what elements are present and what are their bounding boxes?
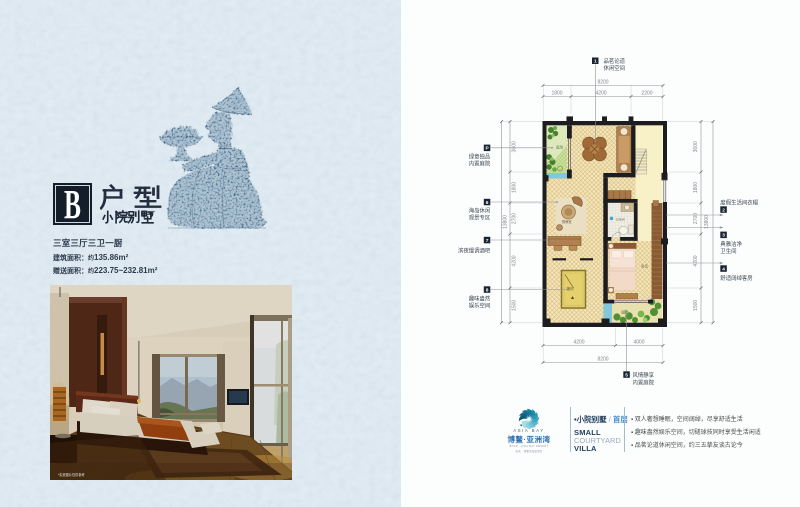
svg-text:绿意独品: 绿意独品 bbox=[469, 153, 491, 161]
svg-text:4200: 4200 bbox=[693, 255, 699, 266]
svg-text:13800: 13800 bbox=[704, 215, 710, 229]
svg-text:度假生活间衣帽: 度假生活间衣帽 bbox=[720, 198, 758, 206]
svg-text:3600: 3600 bbox=[693, 141, 699, 152]
svg-text:客房: 客房 bbox=[641, 264, 649, 269]
svg-text:1800: 1800 bbox=[693, 182, 699, 193]
svg-text:4000: 4000 bbox=[633, 340, 644, 346]
svg-text:风情静享: 风情静享 bbox=[633, 371, 655, 379]
svg-text:海岛休闲: 海岛休闲 bbox=[469, 207, 491, 215]
svg-text:2: 2 bbox=[722, 207, 725, 213]
svg-text:2200: 2200 bbox=[641, 90, 652, 96]
svg-text:6: 6 bbox=[486, 200, 489, 206]
svg-text:8: 8 bbox=[486, 287, 489, 293]
svg-text:1: 1 bbox=[594, 59, 597, 65]
svg-text:典雅洁净: 典雅洁净 bbox=[720, 240, 742, 248]
svg-text:8200: 8200 bbox=[597, 357, 608, 363]
svg-text:卫生间: 卫生间 bbox=[616, 217, 625, 222]
svg-text:1500: 1500 bbox=[512, 300, 518, 311]
svg-text:3: 3 bbox=[722, 233, 725, 239]
svg-text:4200: 4200 bbox=[573, 340, 584, 346]
svg-text:品茗论道: 品茗论道 bbox=[604, 57, 626, 65]
svg-text:2700: 2700 bbox=[512, 213, 518, 224]
svg-text:舒适阔绰客房: 舒适阔绰客房 bbox=[720, 274, 752, 282]
svg-text:内置庭院: 内置庭院 bbox=[633, 379, 655, 387]
svg-text:2700: 2700 bbox=[693, 213, 699, 224]
svg-text:1500: 1500 bbox=[693, 300, 699, 311]
svg-text:7: 7 bbox=[486, 238, 489, 244]
svg-text:休闲空间: 休闲空间 bbox=[604, 64, 626, 72]
svg-text:1800: 1800 bbox=[512, 182, 518, 193]
svg-text:3600: 3600 bbox=[512, 141, 518, 152]
svg-text:庭院: 庭院 bbox=[621, 310, 629, 315]
svg-text:棋牌室: 棋牌室 bbox=[562, 219, 572, 224]
svg-text:娱乐空间: 娱乐空间 bbox=[469, 302, 491, 310]
svg-text:内置庭院: 内置庭院 bbox=[469, 160, 491, 168]
svg-text:趣味盎然: 趣味盎然 bbox=[469, 295, 491, 303]
svg-text:滨夜慢调酒吧: 滨夜慢调酒吧 bbox=[458, 247, 491, 255]
svg-text:观景专区: 观景专区 bbox=[469, 214, 491, 222]
svg-text:4200: 4200 bbox=[595, 90, 606, 96]
svg-text:1800: 1800 bbox=[551, 90, 562, 96]
svg-text:卫生间: 卫生间 bbox=[720, 247, 736, 255]
svg-text:5: 5 bbox=[625, 372, 628, 378]
svg-text:*实景图片仅供参考: *实景图片仅供参考 bbox=[58, 472, 85, 477]
svg-text:4200: 4200 bbox=[512, 255, 518, 266]
svg-text:庭院: 庭院 bbox=[556, 145, 564, 150]
svg-text:4: 4 bbox=[722, 266, 725, 272]
svg-text:13800: 13800 bbox=[503, 215, 509, 229]
svg-text:8200: 8200 bbox=[597, 79, 608, 85]
